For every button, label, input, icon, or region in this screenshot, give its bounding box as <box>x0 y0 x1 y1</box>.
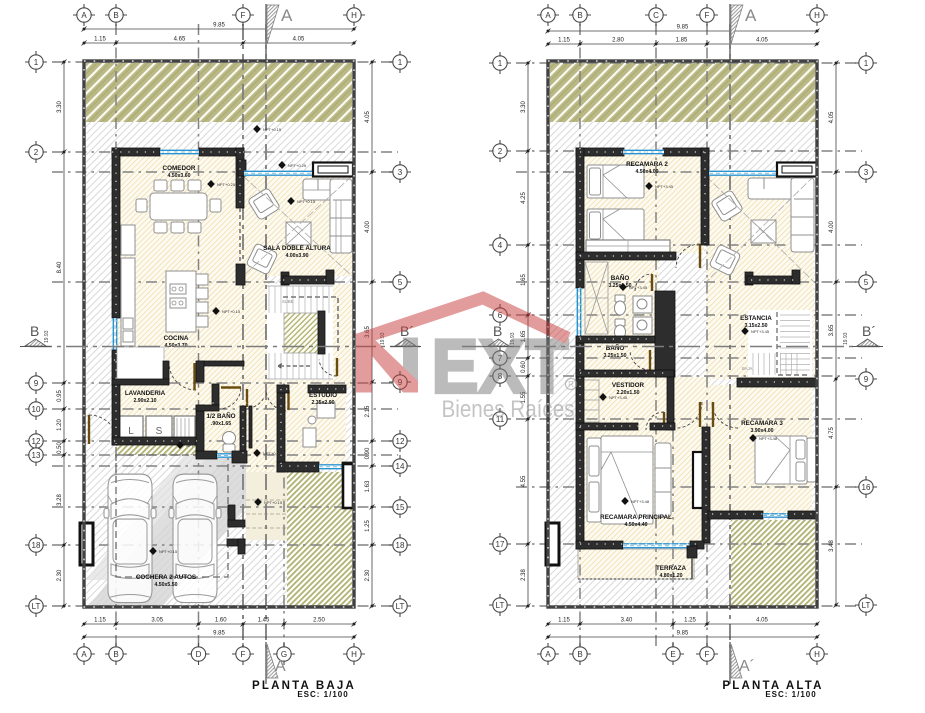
svg-text:1/2 BAÑO: 1/2 BAÑO <box>206 411 235 420</box>
svg-text:17: 17 <box>496 540 505 549</box>
svg-text:C: C <box>653 11 659 20</box>
svg-text:3.40: 3.40 <box>621 618 633 624</box>
svg-text:8.40: 8.40 <box>57 261 63 273</box>
svg-text:9.85: 9.85 <box>677 631 689 637</box>
svg-text:Bienes Raíces: Bienes Raíces <box>442 396 575 423</box>
svg-text:2: 2 <box>34 148 39 157</box>
svg-text:SUBE: SUBE <box>282 299 294 304</box>
svg-text:BAÑO: BAÑO <box>606 343 625 352</box>
svg-text:1.65: 1.65 <box>521 274 527 286</box>
svg-text:A: A <box>545 650 551 659</box>
svg-text:L: L <box>128 426 134 437</box>
svg-text:4.05: 4.05 <box>829 111 835 123</box>
svg-text:TERRAZA: TERRAZA <box>656 565 687 572</box>
svg-text:1.20: 1.20 <box>57 419 63 431</box>
svg-text:1.45: 1.45 <box>258 618 270 624</box>
svg-text:1.15: 1.15 <box>94 37 106 43</box>
svg-text:19.93: 19.93 <box>843 332 849 345</box>
svg-text:4.75: 4.75 <box>829 427 835 439</box>
svg-text:B: B <box>113 11 118 20</box>
svg-text:1.25: 1.25 <box>365 520 371 532</box>
svg-text:4.65: 4.65 <box>174 37 186 43</box>
svg-text:4.00x3.90: 4.00x3.90 <box>285 253 308 259</box>
svg-text:H: H <box>814 11 820 20</box>
svg-text:4.55: 4.55 <box>521 475 527 487</box>
svg-text:2.30: 2.30 <box>57 569 63 581</box>
svg-text:A: A <box>275 658 286 675</box>
svg-text:0.90: 0.90 <box>365 447 371 459</box>
svg-text:3.25x1.50: 3.25x1.50 <box>603 353 626 359</box>
svg-text:1: 1 <box>498 59 503 68</box>
svg-text:4.05: 4.05 <box>293 37 305 43</box>
svg-text:5: 5 <box>398 278 403 287</box>
svg-text:4.00: 4.00 <box>365 221 371 233</box>
svg-text:E: E <box>670 650 675 659</box>
svg-text:R: R <box>568 380 574 389</box>
svg-text:BAJA: BAJA <box>742 366 753 371</box>
svg-text:RECAMARA 3: RECAMARA 3 <box>741 420 783 427</box>
svg-text:16: 16 <box>862 483 871 492</box>
svg-text:F: F <box>705 11 710 20</box>
svg-text:NPT+0.15: NPT+0.15 <box>222 309 241 314</box>
svg-text:NPT+3.45: NPT+3.45 <box>609 395 628 400</box>
svg-text:A: A <box>545 11 551 20</box>
svg-text:ESC: 1/100: ESC: 1/100 <box>765 690 816 699</box>
svg-text:9: 9 <box>864 375 869 384</box>
svg-text:4.25: 4.25 <box>521 192 527 204</box>
svg-text:NPT+3.45: NPT+3.45 <box>655 184 674 189</box>
svg-text:NPT+3.48: NPT+3.48 <box>631 499 650 504</box>
svg-text:B´: B´ <box>862 323 876 339</box>
svg-text:S: S <box>156 426 163 437</box>
svg-text:1.15: 1.15 <box>558 38 570 44</box>
svg-text:3.65: 3.65 <box>829 324 835 336</box>
svg-text:2: 2 <box>498 147 503 156</box>
svg-text:1.25: 1.25 <box>684 618 696 624</box>
svg-text:12: 12 <box>396 437 405 446</box>
svg-text:9: 9 <box>34 379 39 388</box>
svg-text:VESTIDOR: VESTIDOR <box>612 382 645 389</box>
svg-text:13: 13 <box>32 451 41 460</box>
svg-text:3.28: 3.28 <box>57 494 63 506</box>
svg-text:2.15: 2.15 <box>365 405 371 417</box>
svg-text:3.30: 3.30 <box>521 101 527 113</box>
svg-text:A: A <box>81 11 87 20</box>
svg-text:15: 15 <box>396 503 405 512</box>
svg-text:2.38: 2.38 <box>521 569 527 581</box>
svg-text:NPT+0.15: NPT+0.15 <box>263 127 282 132</box>
svg-text:BAÑO: BAÑO <box>611 273 630 282</box>
svg-text:2.50: 2.50 <box>313 618 325 624</box>
svg-text:LT: LT <box>32 602 41 611</box>
svg-text:H: H <box>351 11 357 20</box>
svg-text:0.95: 0.95 <box>57 390 63 402</box>
svg-text:SALA DOBLE ALTURA: SALA DOBLE ALTURA <box>263 245 331 252</box>
svg-text:B: B <box>577 650 582 659</box>
svg-text:NPT+3.45: NPT+3.45 <box>751 329 770 334</box>
svg-text:3.30: 3.30 <box>57 101 63 113</box>
svg-text:3.48: 3.48 <box>829 540 835 552</box>
svg-text:1.60: 1.60 <box>215 618 227 624</box>
svg-text:1: 1 <box>34 58 39 67</box>
svg-text:2.90x2.10: 2.90x2.10 <box>133 398 156 404</box>
svg-text:4.50x5.50: 4.50x5.50 <box>154 582 177 588</box>
svg-text:10: 10 <box>32 405 41 414</box>
svg-text:H: H <box>814 650 820 659</box>
svg-text:COCHERA 2 AUTOS: COCHERA 2 AUTOS <box>136 574 196 581</box>
svg-text:A: A <box>81 650 87 659</box>
svg-text:ESC: 1/100: ESC: 1/100 <box>297 690 348 699</box>
svg-text:RECAMARA PRINCIPAL: RECAMARA PRINCIPAL <box>600 514 672 521</box>
svg-text:4.05: 4.05 <box>756 618 768 624</box>
svg-text:F: F <box>241 11 246 20</box>
svg-text:LT: LT <box>496 601 505 610</box>
svg-text:A: A <box>745 6 757 25</box>
svg-text:A: A <box>281 6 293 25</box>
svg-text:NPT+0.25: NPT+0.25 <box>217 182 236 187</box>
svg-text:H: H <box>351 650 357 659</box>
svg-text:2.30: 2.30 <box>365 569 371 581</box>
svg-text:18: 18 <box>32 541 41 550</box>
svg-text:COMEDOR: COMEDOR <box>163 165 196 172</box>
svg-text:18: 18 <box>396 541 405 550</box>
svg-text:NPT+0.25: NPT+0.25 <box>288 163 307 168</box>
svg-text:1.15: 1.15 <box>558 618 570 624</box>
svg-text:9.85: 9.85 <box>213 631 225 637</box>
svg-text:3: 3 <box>398 168 403 177</box>
svg-text:4.80x1.20: 4.80x1.20 <box>659 573 682 579</box>
svg-text:COCINA: COCINA <box>164 335 189 342</box>
svg-text:3.05: 3.05 <box>151 618 163 624</box>
svg-text:NPT+3.48: NPT+3.48 <box>759 436 778 441</box>
svg-text:4.50x4.00: 4.50x4.00 <box>635 169 658 175</box>
svg-text:4.00: 4.00 <box>829 221 835 233</box>
svg-text:5: 5 <box>864 278 869 287</box>
svg-text:1.63: 1.63 <box>365 480 371 492</box>
svg-text:2.80: 2.80 <box>612 38 624 44</box>
svg-text:ESTANCIA: ESTANCIA <box>740 315 772 322</box>
svg-text:NPT+3.45: NPT+3.45 <box>629 285 648 290</box>
svg-text:4.50x4.40: 4.50x4.40 <box>624 522 647 528</box>
svg-text:F: F <box>705 650 710 659</box>
svg-text:ESTUDIO: ESTUDIO <box>309 392 337 399</box>
svg-text:1.15: 1.15 <box>94 618 106 624</box>
svg-text:9.85: 9.85 <box>213 23 225 29</box>
svg-text:B: B <box>577 11 582 20</box>
svg-text:RECAMARA 2: RECAMARA 2 <box>626 161 668 168</box>
svg-text:NPT: NPT <box>186 443 195 448</box>
svg-text:NPT+0.15: NPT+0.15 <box>264 500 283 505</box>
svg-text:3: 3 <box>864 168 869 177</box>
svg-text:9.85: 9.85 <box>677 25 689 31</box>
svg-text:1.85: 1.85 <box>676 38 688 44</box>
svg-text:LT: LT <box>396 602 405 611</box>
svg-text:B: B <box>113 650 118 659</box>
svg-text:A´: A´ <box>739 658 755 675</box>
svg-text:1: 1 <box>864 59 869 68</box>
svg-text:LAVANDERIA: LAVANDERIA <box>125 390 166 397</box>
svg-text:B: B <box>30 323 39 339</box>
svg-text:4.05: 4.05 <box>756 38 768 44</box>
svg-text:NPT+0.15: NPT+0.15 <box>159 549 178 554</box>
svg-text:NPT+0.25: NPT+0.25 <box>263 451 282 456</box>
svg-text:2.35x2.90: 2.35x2.90 <box>311 400 334 406</box>
svg-text:LT: LT <box>862 601 871 610</box>
svg-text:D: D <box>196 650 202 659</box>
svg-text:4.50x3.60: 4.50x3.60 <box>167 173 190 179</box>
svg-text:14: 14 <box>396 462 405 471</box>
svg-text:1: 1 <box>398 58 403 67</box>
svg-text:NPT+0.15: NPT+0.15 <box>297 199 316 204</box>
svg-text:0.50: 0.50 <box>57 442 63 454</box>
svg-text:4: 4 <box>498 241 503 250</box>
svg-text:4.05: 4.05 <box>365 111 371 123</box>
svg-text:F: F <box>241 650 246 659</box>
svg-text:19.93: 19.93 <box>44 330 50 343</box>
svg-text:.90x1.65: .90x1.65 <box>211 421 231 427</box>
svg-text:3.90x4.00: 3.90x4.00 <box>750 428 773 434</box>
